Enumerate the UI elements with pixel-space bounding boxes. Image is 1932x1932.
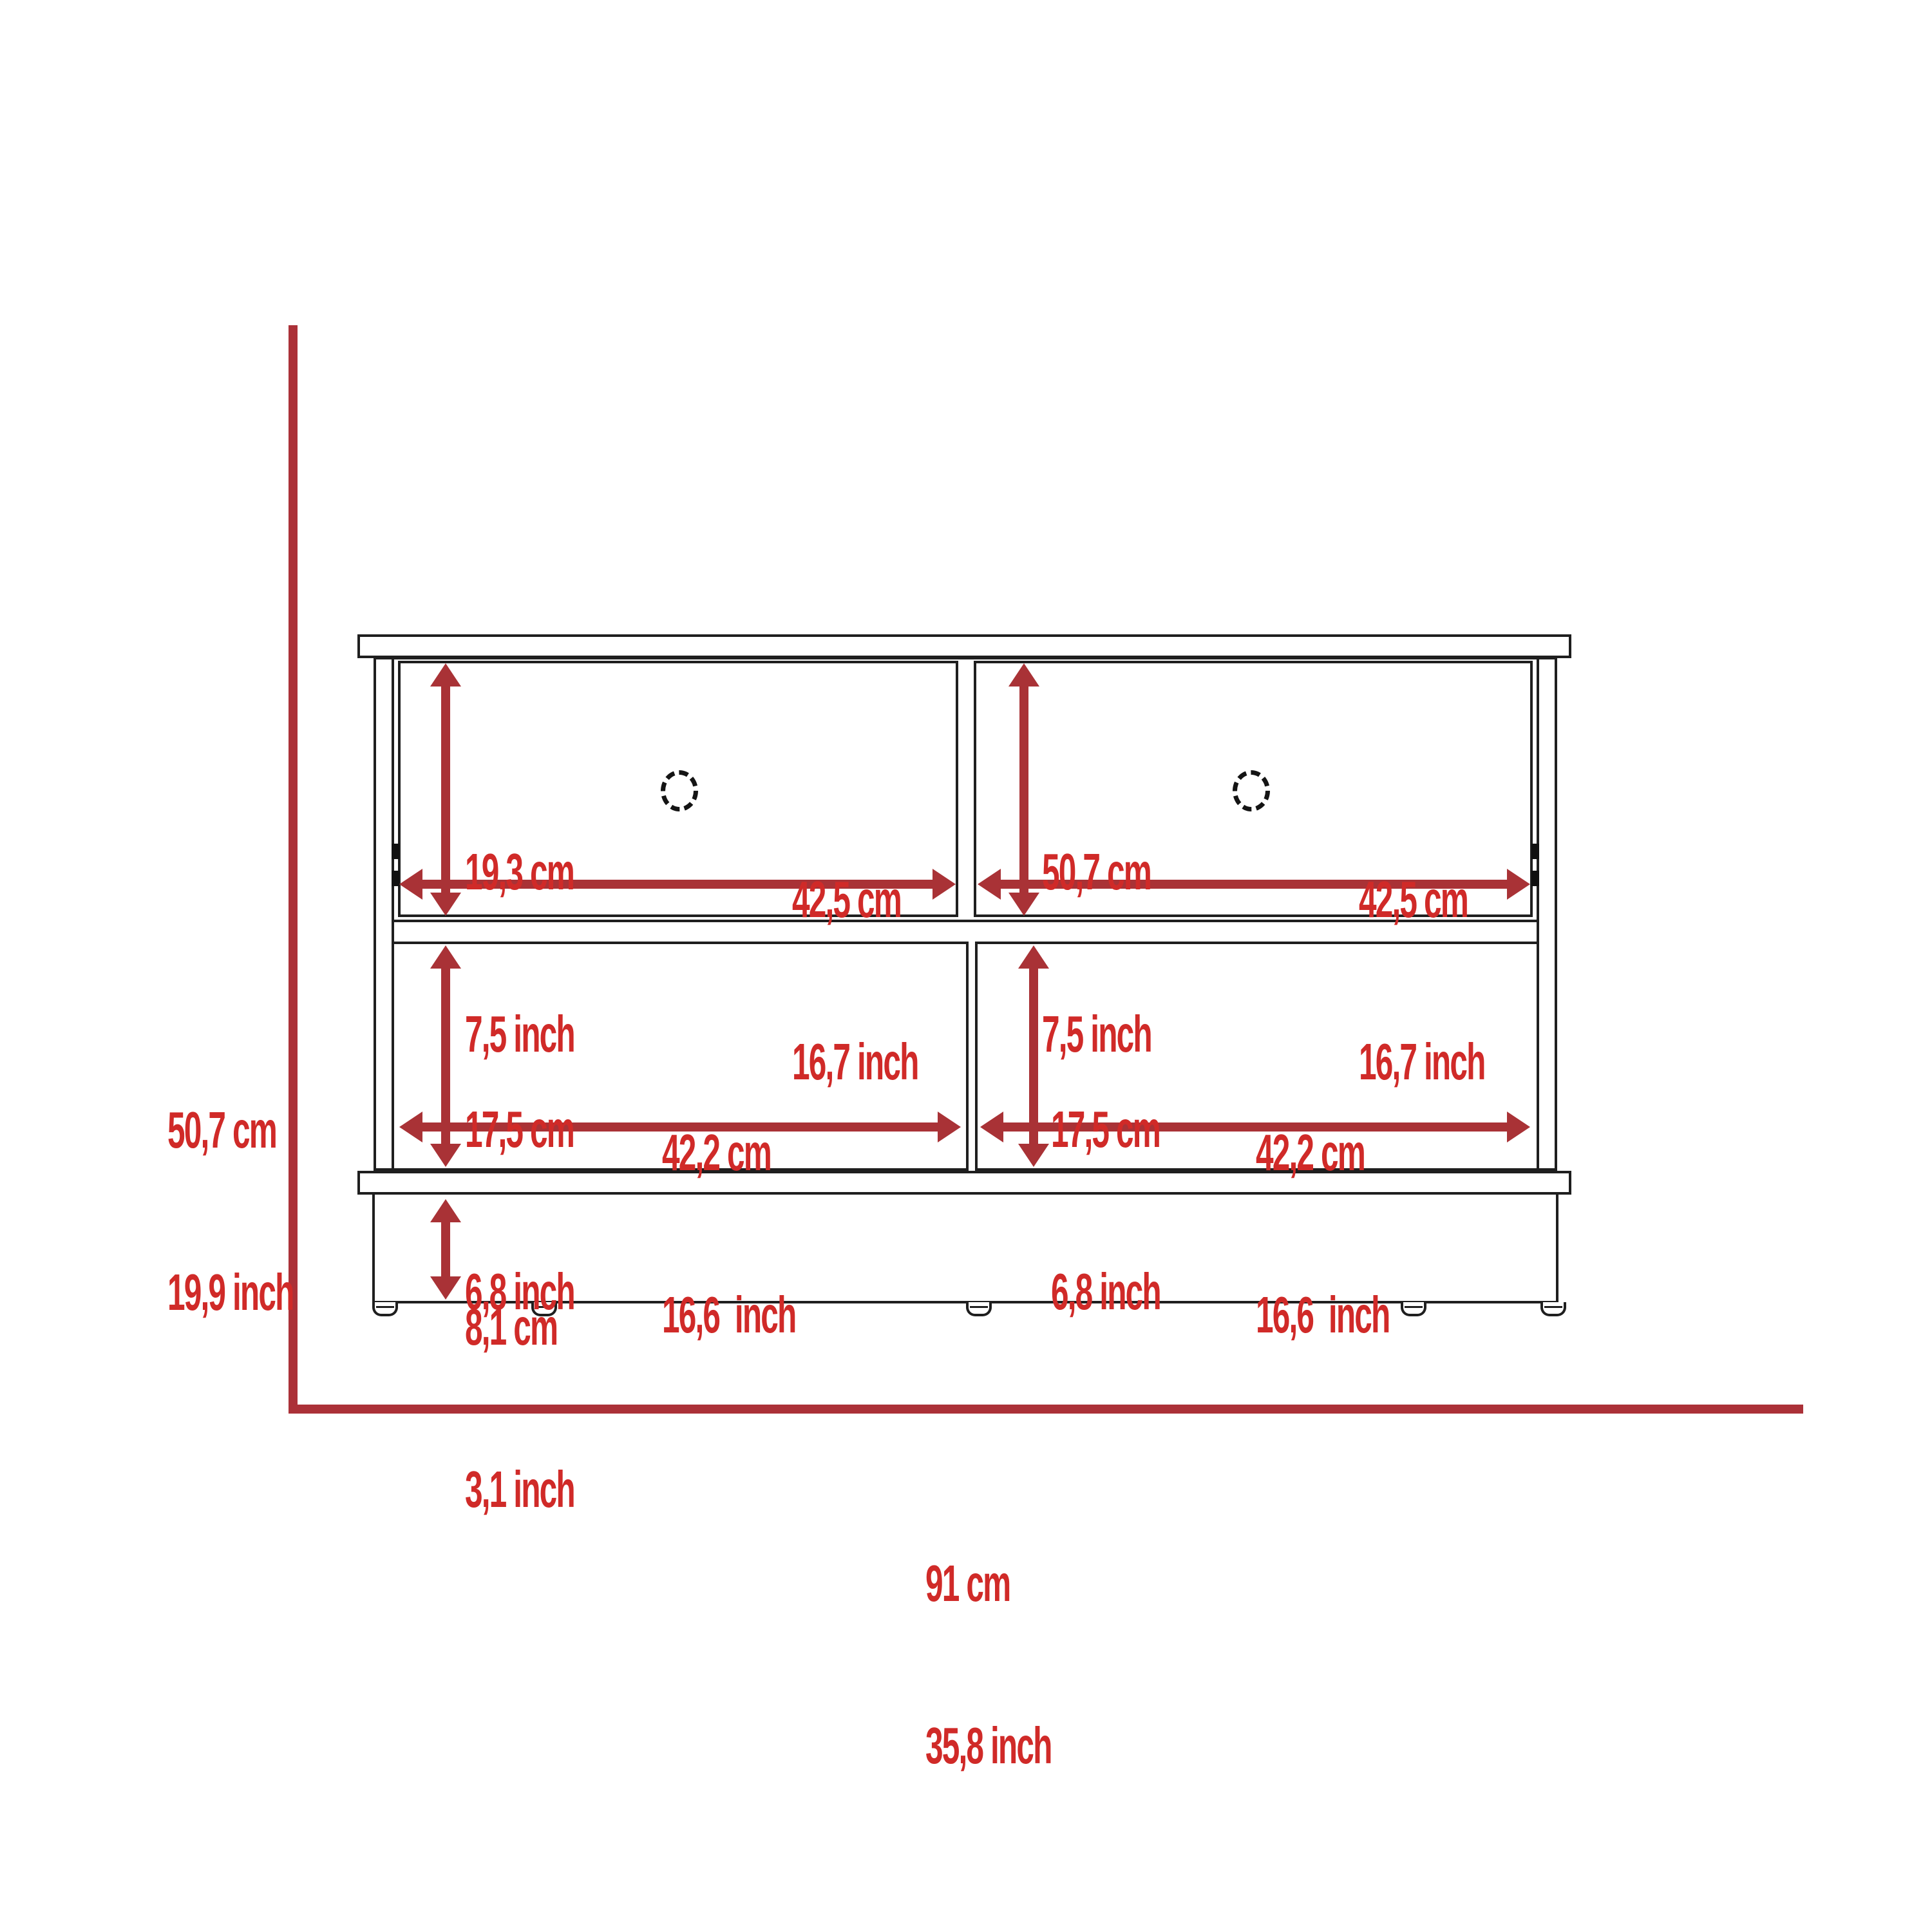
top-left-drawer-height-cm: 19,3 cm <box>465 845 574 899</box>
label-base-height: 8,1 cm 3,1 inch <box>465 1192 574 1625</box>
label-top-left-drawer-width: 42,5 cm 16,7 inch <box>792 764 918 1197</box>
label-overall-height: 50,7 cm 19,9 inch <box>167 995 294 1428</box>
foot-1 <box>372 1302 398 1316</box>
overall-height-cm: 50,7 cm <box>167 1103 294 1157</box>
top-left-drawer-width-inch: 16,7 inch <box>792 1035 918 1089</box>
bottom-right-shelf-height-cm: 17,5 cm <box>1051 1103 1160 1157</box>
hinge-mark-right-lower <box>1531 871 1539 886</box>
base-height-cm: 8,1 cm <box>465 1300 574 1354</box>
foot-5 <box>1540 1302 1566 1316</box>
lower-center-divider <box>966 942 978 1171</box>
label-overall-width: 91 cm 35,8 inch <box>925 1448 1052 1881</box>
hinge-mark-right-upper <box>1531 844 1539 859</box>
label-bottom-left-shelf-width: 42,2 cm 16,6 inch <box>662 1018 795 1450</box>
right-side-panel-inner-line <box>1537 657 1539 1171</box>
bottom-left-shelf-height-cm: 17,5 cm <box>465 1103 574 1157</box>
overall-width-inch: 35,8 inch <box>925 1719 1052 1773</box>
drawer-hole-right <box>1233 770 1270 811</box>
arrow-bottom-right-shelf-height <box>1029 967 1038 1145</box>
arrow-bottom-left-shelf-height <box>441 967 450 1145</box>
top-right-drawer-width-cm: 42,5 cm <box>1359 873 1485 927</box>
overall-width-cm: 91 cm <box>925 1557 1052 1611</box>
label-bottom-right-shelf-height: 17,5 cm 6,8 inch <box>1051 994 1160 1427</box>
arrow-top-right-drawer-height <box>1019 685 1028 894</box>
dimension-diagram: 50,7 cm 19,9 inch 91 cm 35,8 inch 19,3 c… <box>0 0 1932 1932</box>
foot-4 <box>1401 1302 1426 1316</box>
bottom-right-shelf-width-cm: 42,2 cm <box>1256 1126 1389 1180</box>
bottom-left-shelf-width-cm: 42,2 cm <box>662 1126 795 1180</box>
base-height-inch: 3,1 inch <box>465 1463 574 1517</box>
arrow-top-left-drawer-height <box>441 685 450 894</box>
hinge-mark-left-upper <box>392 844 399 859</box>
hinge-mark-left-lower <box>392 871 399 886</box>
label-bottom-right-shelf-width: 42,2 cm 16,6 inch <box>1256 1018 1389 1450</box>
top-left-drawer-width-cm: 42,5 cm <box>792 873 918 927</box>
arrow-base-height <box>441 1221 450 1278</box>
drawer-hole-left <box>661 770 698 811</box>
foot-3 <box>966 1302 992 1316</box>
bottom-right-shelf-height-inch: 6,8 inch <box>1051 1265 1160 1319</box>
bottom-left-shelf-width-inch: 16,6 inch <box>662 1288 795 1342</box>
overall-height-inch: 19,9 inch <box>167 1265 294 1320</box>
furniture-top-board <box>357 634 1571 658</box>
left-side-panel-inner-line <box>392 657 394 1171</box>
bottom-right-shelf-width-inch: 16,6 inch <box>1256 1288 1389 1342</box>
top-right-drawer-height-cm: 50,7 cm <box>1042 845 1151 899</box>
